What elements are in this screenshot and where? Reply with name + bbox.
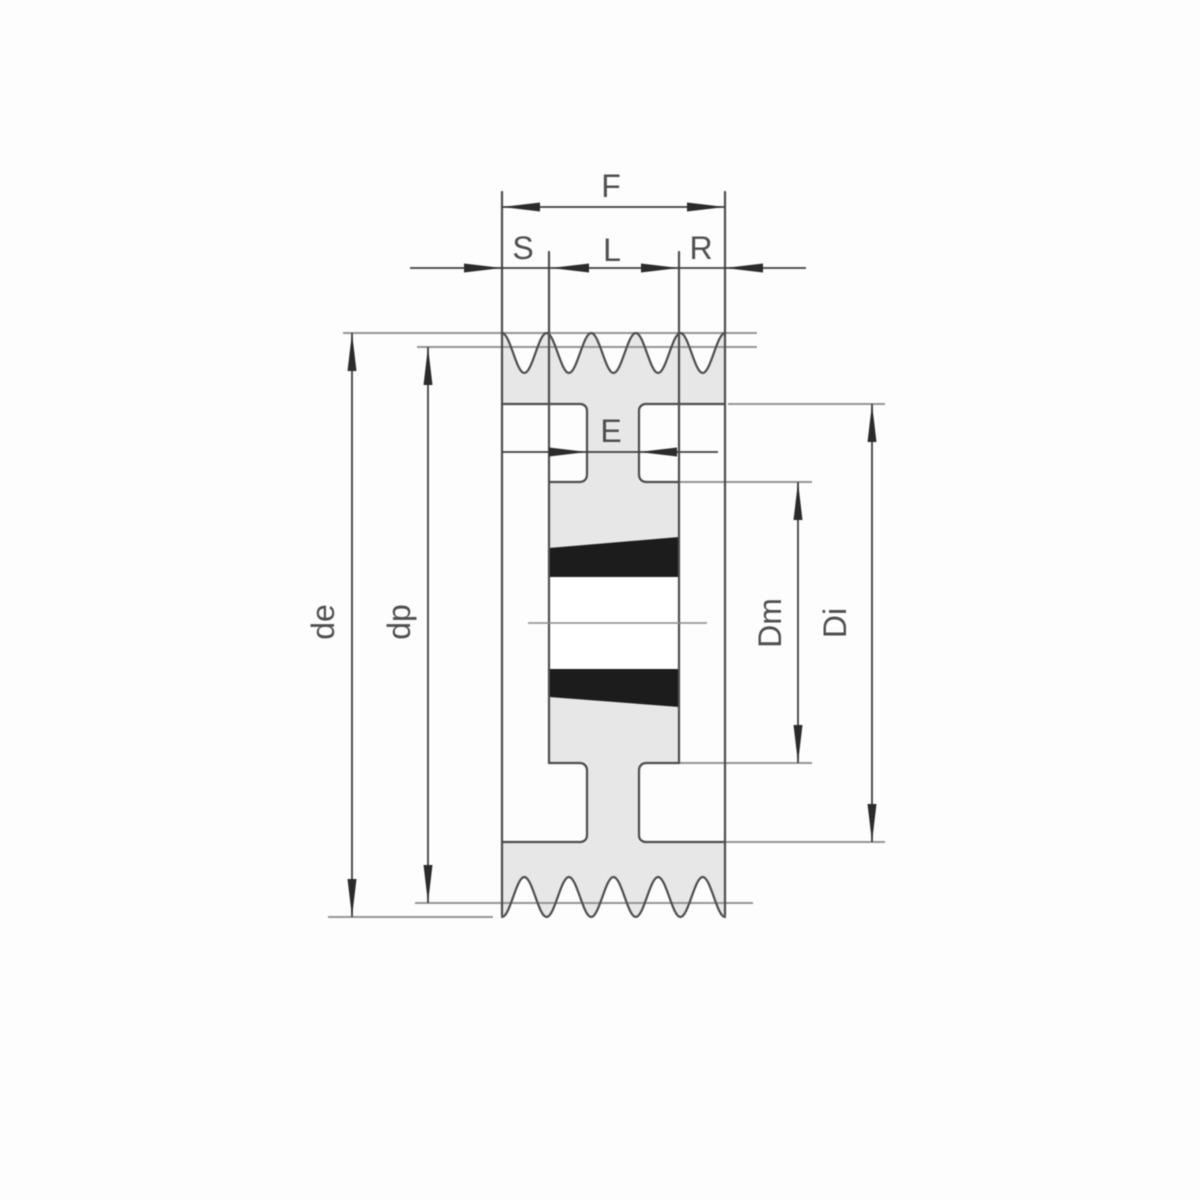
- dim-label-Dm: Dm: [752, 598, 788, 648]
- dim-label-S: S: [512, 230, 533, 266]
- dim-label-E: E: [600, 413, 621, 449]
- dim-label-dp: dp: [381, 604, 417, 640]
- arrow-Di-bottom: [868, 804, 877, 842]
- arrow-de-top: [348, 333, 357, 371]
- arrow-E-right: [639, 448, 677, 457]
- web-bottom-fill: [587, 763, 639, 842]
- arrow-E-left: [549, 448, 587, 457]
- pulley-section-drawing: F S L R E de dp Dm Di: [0, 0, 1200, 1200]
- arrow-L-left: [551, 264, 589, 273]
- rim-inner-bottom-right: [639, 763, 725, 842]
- arrow-S-outer: [464, 264, 502, 273]
- arrow-Dm-top: [794, 482, 803, 520]
- arrow-F-right: [687, 203, 725, 212]
- rim-top-fill: [502, 333, 725, 404]
- dim-label-L: L: [603, 232, 621, 268]
- arrow-Di-top: [868, 404, 877, 442]
- dim-label-R: R: [689, 230, 712, 266]
- arrow-dp-bottom: [424, 865, 433, 903]
- rim-inner-top-left: [502, 404, 587, 482]
- arrow-de-bottom: [348, 879, 357, 917]
- rim-bottom-fill: [502, 842, 725, 917]
- dim-label-de: de: [305, 604, 341, 640]
- dim-label-Di: Di: [817, 608, 853, 638]
- drawing-svg: F S L R E de dp Dm Di: [0, 0, 1200, 1200]
- rim-inner-bottom-left: [502, 763, 587, 842]
- arrow-dp-top: [424, 347, 433, 385]
- arrow-F-left: [502, 203, 540, 212]
- arrow-R-outer: [725, 264, 763, 273]
- dim-label-F: F: [601, 168, 621, 204]
- arrow-Dm-bottom: [794, 725, 803, 763]
- rim-inner-top-right: [639, 404, 725, 482]
- arrow-L-right: [641, 264, 679, 273]
